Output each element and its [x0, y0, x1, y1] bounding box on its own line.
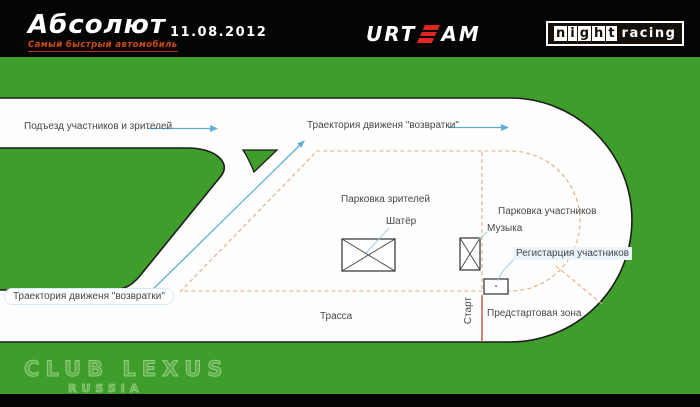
- label-music: Музыка: [487, 223, 522, 234]
- header-bar: Абсолют Самый быстрый автомобиль 11.08.2…: [0, 0, 700, 57]
- label-return-top: Траектория движеня "возвратки": [307, 120, 459, 131]
- label-participant-parking: Парковка участников: [498, 206, 596, 217]
- music-marker: [460, 238, 480, 270]
- brand-title: Абсолют: [28, 12, 178, 38]
- label-spectator-parking: Парковка зрителей: [341, 194, 430, 205]
- label-registration: Регистарция участников: [513, 247, 632, 260]
- event-date: 11.08.2012: [170, 25, 267, 40]
- site-map-drawing: [0, 57, 700, 394]
- label-prestart: Предстартовая зона: [487, 308, 581, 319]
- absolut-logo: Абсолют Самый быстрый автомобиль: [28, 12, 178, 52]
- night-letter-chip: i: [568, 26, 576, 41]
- night-letter-chip: g: [578, 26, 591, 41]
- uateam-logo-left: urt: [366, 22, 416, 46]
- label-start: Старт: [463, 297, 474, 324]
- site-map: Подъезд участников и зрителей Траектория…: [0, 57, 700, 394]
- night-letter-chip: t: [606, 26, 616, 41]
- label-tent: Шатёр: [386, 216, 416, 227]
- registration-marker: [484, 279, 508, 294]
- night-letter-chip: n: [554, 26, 567, 41]
- label-track: Трасса: [320, 311, 352, 322]
- uateam-logo-right: am: [441, 22, 480, 46]
- label-approach: Подъезд участников и зрителей: [24, 121, 172, 132]
- tent-marker: [342, 239, 395, 271]
- nightracing-logo: n i g h t racing: [546, 21, 684, 46]
- uateam-logo: urt am: [366, 22, 481, 46]
- label-return-bottom: Траектория движеня "возвратки": [4, 288, 174, 305]
- uateam-e-icon: [417, 25, 440, 43]
- brand-tagline: Самый быстрый автомобиль: [28, 40, 178, 52]
- night-letter-chip: h: [592, 26, 605, 41]
- racing-text: racing: [622, 26, 677, 41]
- footer-bar: [0, 394, 700, 407]
